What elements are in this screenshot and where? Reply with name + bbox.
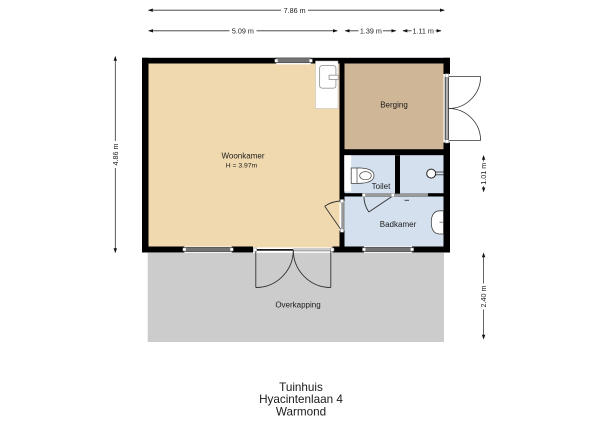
- svg-text:H = 3.97m: H = 3.97m: [226, 163, 258, 170]
- svg-text:Badkamer: Badkamer: [380, 220, 417, 229]
- svg-text:2.40 m: 2.40 m: [479, 286, 488, 308]
- svg-text:Overkapping: Overkapping: [275, 301, 320, 310]
- svg-text:1.01 m: 1.01 m: [479, 163, 488, 185]
- svg-text:4.86 m: 4.86 m: [111, 144, 120, 166]
- svg-text:7.86 m: 7.86 m: [284, 6, 306, 15]
- svg-text:1.11 m: 1.11 m: [412, 26, 433, 35]
- svg-text:1.39 m: 1.39 m: [360, 26, 382, 35]
- svg-text:Tuinhuis: Tuinhuis: [279, 381, 323, 394]
- svg-text:Hyacintenlaan 4: Hyacintenlaan 4: [259, 393, 343, 406]
- svg-text:Toilet: Toilet: [372, 182, 391, 191]
- svg-text:5.09 m: 5.09 m: [232, 26, 254, 35]
- svg-text:Berging: Berging: [380, 100, 408, 109]
- svg-text:Woonkamer: Woonkamer: [222, 151, 265, 160]
- svg-text:Warmond: Warmond: [276, 406, 326, 419]
